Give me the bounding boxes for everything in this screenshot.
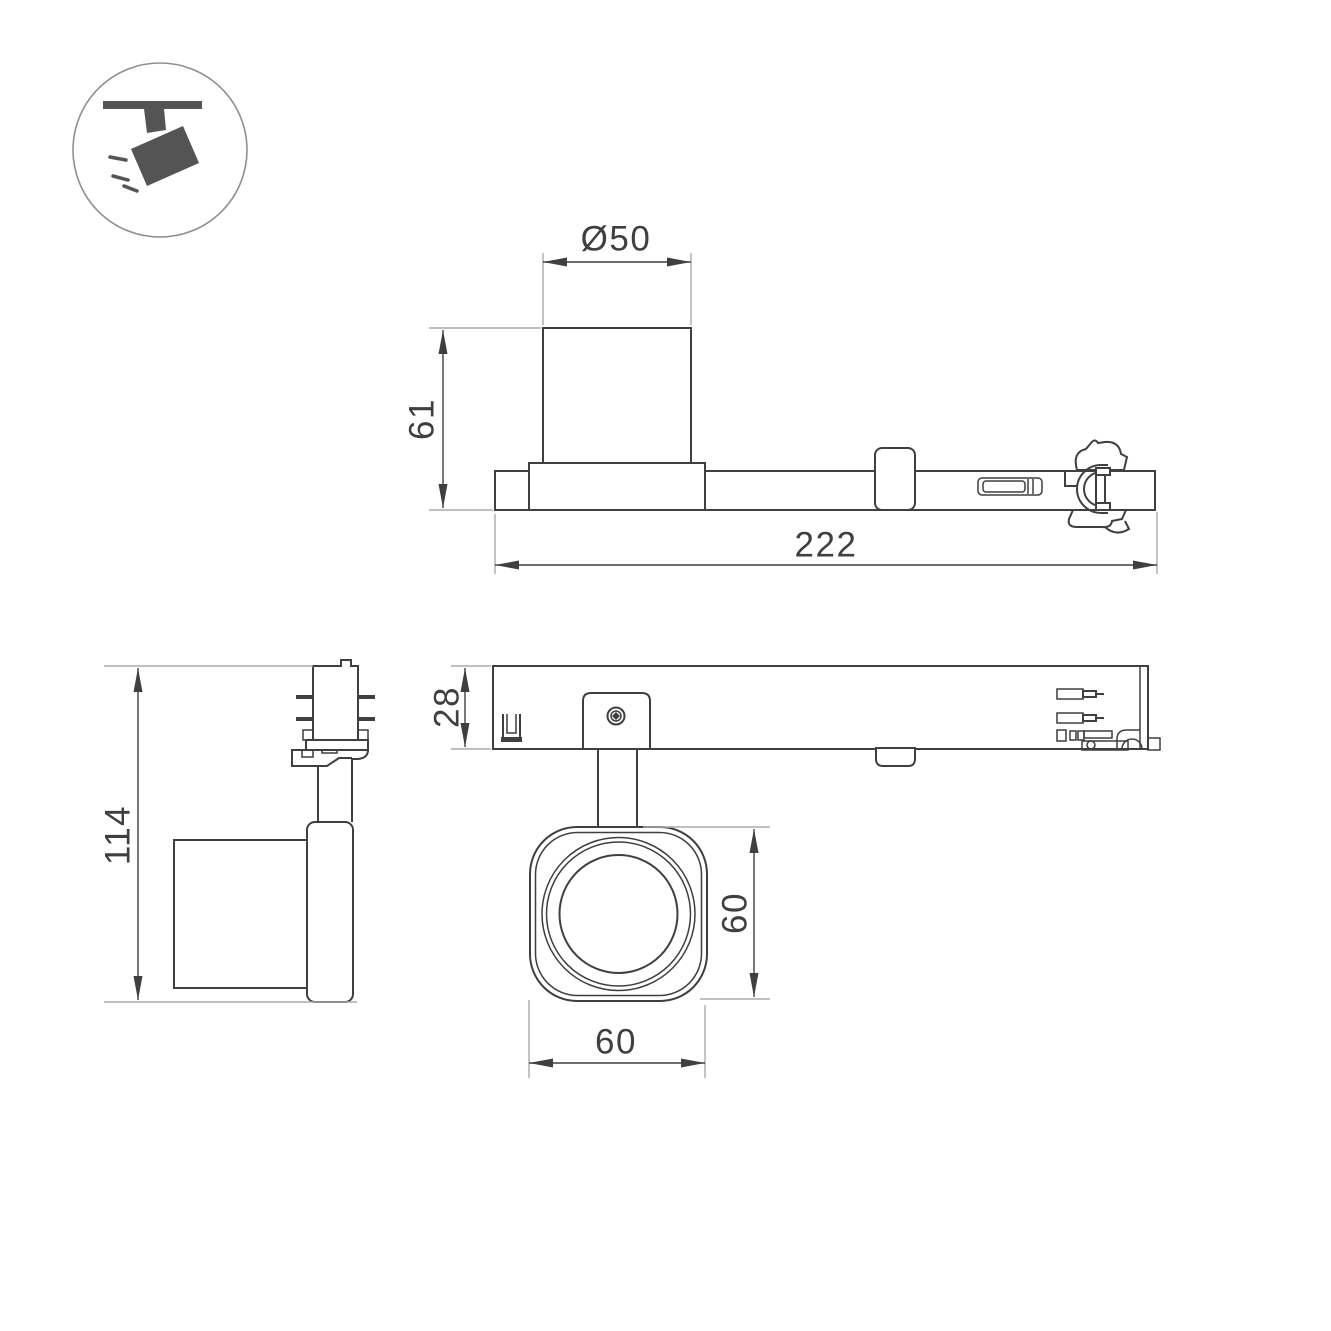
view-side-fixture: 114 [98, 660, 375, 1002]
connector-tab-left [303, 730, 313, 740]
head-squircle-outer [530, 827, 707, 1001]
adapter-cylinder [543, 328, 691, 463]
view-top-elevation: Ø50 61 222 [402, 219, 1157, 574]
drawing-svg: Ø50 61 222 [0, 0, 1331, 1331]
icon-track-bar [103, 101, 202, 109]
dim-label-total-length: 222 [795, 525, 858, 564]
view-front-track: 28 [427, 666, 1160, 828]
dim-label-diameter: Ø50 [581, 219, 652, 258]
end-tab [1148, 738, 1160, 750]
adapter-plate [306, 740, 368, 750]
dim-track-depth: 28 [427, 666, 491, 749]
connector-tab-right [358, 730, 368, 740]
icon-stem [144, 109, 166, 133]
lamp-lens-barrel [174, 840, 307, 988]
dim-label-head-height: 60 [715, 892, 754, 934]
adapter-base [529, 463, 705, 510]
dim-total-length: 222 [495, 512, 1157, 574]
lamp-body-side [307, 822, 353, 1002]
adapter-slot [322, 750, 337, 753]
dim-label-adapter-height: 61 [402, 398, 441, 440]
dim-label-track-depth: 28 [427, 686, 466, 728]
dim-head-width: 60 [529, 1000, 705, 1078]
dim-label-fixture-height: 114 [98, 805, 137, 865]
dim-label-head-width: 60 [595, 1022, 637, 1061]
technical-drawing-sheet: Ø50 61 222 [0, 0, 1331, 1331]
track-spotlight-icon [73, 63, 247, 237]
clamp-knob-front [876, 748, 915, 766]
track-connector-head [313, 660, 358, 740]
pivot-mount [583, 693, 650, 749]
clamp-knob [875, 448, 915, 510]
dim-head-diameter: Ø50 [543, 219, 691, 325]
view-head-bottom: 60 60 [529, 827, 770, 1078]
